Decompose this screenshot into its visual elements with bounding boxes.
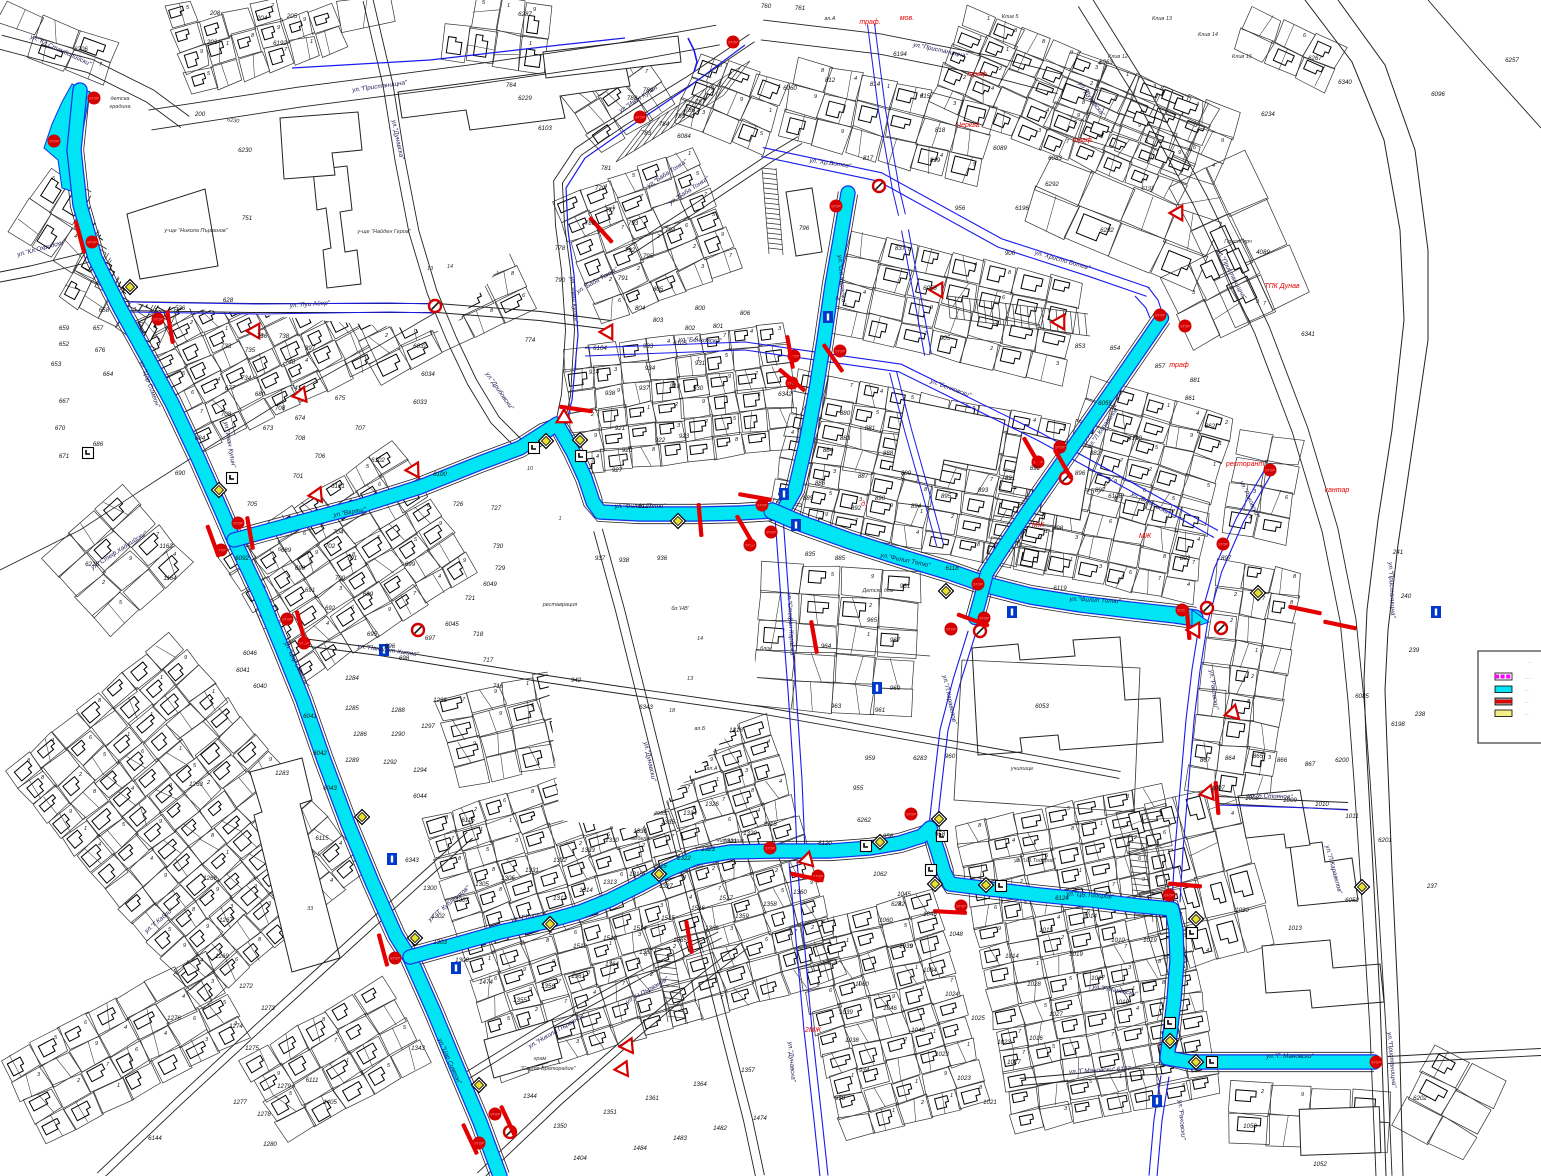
svg-text:9: 9: [95, 1041, 98, 1047]
svg-text:1: 1: [480, 827, 483, 833]
svg-text:9: 9: [463, 558, 466, 564]
svg-text:867: 867: [1305, 761, 1316, 768]
svg-text:STOP: STOP: [831, 205, 841, 209]
svg-text:1404: 1404: [573, 1155, 587, 1162]
svg-text:STOP: STOP: [973, 583, 983, 587]
svg-text:4: 4: [164, 1031, 167, 1037]
svg-text:4: 4: [326, 621, 329, 627]
svg-text:2: 2: [534, 1007, 538, 1013]
svg-text:траф.: траф.: [967, 71, 988, 78]
svg-text:1060: 1060: [855, 981, 869, 988]
svg-text:6101: 6101: [331, 483, 345, 490]
svg-text:STOP: STOP: [233, 522, 243, 526]
svg-text:892: 892: [851, 505, 862, 512]
svg-text:526: 526: [175, 305, 186, 312]
svg-text:1314: 1314: [579, 887, 593, 894]
svg-text:6059: 6059: [1098, 400, 1112, 407]
svg-text:1322: 1322: [677, 855, 691, 862]
svg-text:708: 708: [275, 405, 286, 412]
svg-text:2: 2: [998, 66, 1002, 72]
svg-text:881: 881: [865, 425, 875, 432]
svg-text:892: 892: [1030, 465, 1041, 472]
svg-text:1474: 1474: [753, 1115, 767, 1122]
svg-text:1323: 1323: [701, 846, 715, 853]
svg-text:6283: 6283: [913, 755, 927, 762]
svg-text:1326: 1326: [705, 801, 719, 808]
svg-text:9: 9: [277, 25, 280, 31]
svg-text:1305: 1305: [475, 881, 489, 888]
svg-text:4953: 4953: [654, 811, 667, 817]
svg-text:959: 959: [865, 755, 876, 762]
svg-text:964: 964: [821, 643, 832, 650]
svg-text:1: 1: [867, 632, 870, 638]
svg-text:6194: 6194: [893, 51, 907, 58]
svg-text:6262: 6262: [857, 817, 871, 824]
svg-text:4: 4: [757, 808, 760, 814]
svg-text:1279: 1279: [277, 1083, 291, 1090]
svg-text:4: 4: [51, 738, 54, 744]
svg-text:6052: 6052: [1345, 897, 1359, 904]
svg-text:9: 9: [473, 741, 476, 747]
svg-text:1359: 1359: [735, 913, 749, 920]
svg-text:1: 1: [1213, 462, 1216, 468]
svg-text:6045: 6045: [445, 621, 459, 628]
svg-text:1: 1: [226, 850, 229, 856]
svg-text:2: 2: [989, 346, 993, 352]
svg-text:1025: 1025: [971, 1015, 985, 1022]
svg-text:779: 779: [595, 185, 606, 192]
svg-text:897: 897: [1095, 487, 1106, 494]
svg-text:697: 697: [425, 635, 436, 642]
svg-text:930: 930: [693, 385, 704, 392]
svg-text:4: 4: [339, 841, 342, 847]
svg-text:6063: 6063: [1099, 59, 1113, 66]
svg-text:2: 2: [473, 807, 477, 813]
svg-text:1267: 1267: [219, 917, 233, 924]
svg-text:1327: 1327: [659, 883, 673, 890]
svg-text:937: 937: [639, 385, 650, 392]
svg-text:702: 702: [325, 543, 336, 550]
svg-text:1277: 1277: [233, 1099, 247, 1106]
svg-text:2: 2: [920, 1100, 924, 1106]
svg-text:6229: 6229: [518, 95, 532, 102]
svg-text:4: 4: [1206, 948, 1209, 954]
svg-text:1335: 1335: [661, 819, 675, 826]
svg-text:STOP: STOP: [87, 241, 97, 245]
svg-text:1: 1: [769, 108, 772, 114]
svg-text:STOP: STOP: [946, 628, 956, 632]
svg-text:2: 2: [1260, 1089, 1264, 1095]
svg-text:835: 835: [805, 551, 816, 558]
svg-text:Клив 13: Клив 13: [1152, 16, 1173, 22]
svg-text:.........: .........: [1524, 676, 1532, 680]
svg-text:1360: 1360: [793, 889, 807, 896]
svg-text:965: 965: [867, 617, 878, 624]
svg-text:812: 812: [825, 77, 836, 84]
svg-text:920: 920: [622, 447, 633, 454]
svg-text:817: 817: [863, 155, 874, 162]
svg-text:864: 864: [1225, 755, 1236, 762]
svg-text:956: 956: [883, 833, 894, 840]
svg-text:791: 791: [618, 275, 628, 282]
svg-text:1039: 1039: [839, 1009, 853, 1016]
svg-text:205: 205: [286, 13, 298, 20]
svg-text:1: 1: [1045, 529, 1048, 535]
svg-text:2: 2: [270, 3, 274, 9]
svg-text:1: 1: [179, 746, 182, 752]
svg-text:670: 670: [55, 425, 66, 432]
svg-text:690: 690: [175, 470, 186, 477]
svg-text:4: 4: [1187, 582, 1190, 588]
svg-text:888: 888: [883, 450, 894, 457]
svg-text:658: 658: [99, 307, 110, 314]
svg-text:931: 931: [695, 360, 705, 367]
svg-text:898: 898: [1053, 525, 1064, 532]
svg-text:1344: 1344: [523, 1093, 537, 1100]
svg-text:9: 9: [702, 399, 705, 405]
svg-text:1: 1: [529, 41, 532, 47]
svg-text:2: 2: [1060, 935, 1064, 941]
svg-text:4089: 4089: [1256, 249, 1270, 256]
svg-text:STOP: STOP: [1218, 543, 1228, 547]
svg-text:862: 862: [1205, 423, 1216, 430]
svg-text:6343: 6343: [639, 704, 653, 711]
svg-text:4: 4: [1136, 1006, 1139, 1012]
svg-text:10: 10: [527, 466, 534, 472]
svg-text:6040: 6040: [253, 683, 267, 690]
svg-text:1278: 1278: [257, 1111, 271, 1118]
svg-text:1361: 1361: [645, 1095, 659, 1102]
svg-text:4: 4: [182, 994, 185, 1000]
svg-text:9: 9: [814, 94, 817, 100]
svg-text:2: 2: [76, 1078, 80, 1084]
svg-text:1019: 1019: [1069, 951, 1083, 958]
svg-text:885: 885: [803, 495, 814, 502]
svg-text:1024: 1024: [945, 991, 959, 998]
svg-text:786: 786: [685, 107, 696, 114]
svg-text:792: 792: [625, 247, 636, 254]
svg-text:895: 895: [941, 493, 952, 500]
svg-text:707: 707: [355, 425, 366, 432]
svg-text:9: 9: [825, 512, 828, 518]
svg-text:6117: 6117: [638, 503, 652, 510]
svg-text:1: 1: [488, 956, 491, 962]
svg-text:673: 673: [263, 425, 274, 432]
svg-text:1273: 1273: [261, 1005, 275, 1012]
svg-text:9: 9: [184, 655, 187, 661]
svg-text:699: 699: [363, 591, 374, 598]
svg-text:1048: 1048: [911, 1027, 925, 1034]
svg-text:1007: 1007: [1211, 785, 1225, 792]
svg-text:6034: 6034: [421, 371, 435, 378]
svg-text:691: 691: [305, 587, 315, 594]
svg-text:STOP: STOP: [474, 1142, 484, 1146]
svg-text:1302: 1302: [431, 913, 445, 920]
svg-text:6032: 6032: [413, 343, 427, 350]
svg-text:793: 793: [628, 220, 639, 227]
svg-text:738: 738: [279, 333, 290, 340]
svg-text:727: 727: [491, 505, 502, 512]
svg-text:237: 237: [1426, 883, 1438, 890]
svg-text:726: 726: [453, 501, 464, 508]
svg-text:1514: 1514: [633, 925, 647, 932]
svg-text:818: 818: [935, 127, 946, 134]
svg-text:2: 2: [950, 514, 954, 520]
svg-text:674: 674: [295, 415, 306, 422]
svg-text:4: 4: [305, 358, 308, 364]
svg-text:9: 9: [206, 924, 209, 930]
svg-text:659: 659: [59, 325, 70, 332]
svg-text:761: 761: [795, 5, 805, 12]
svg-text:1512: 1512: [573, 943, 587, 950]
svg-text:6342: 6342: [778, 391, 792, 398]
svg-text:6041: 6041: [303, 713, 317, 720]
svg-text:704: 704: [333, 529, 344, 536]
svg-text:траф.: траф.: [859, 19, 880, 26]
svg-text:вл.А: вл.А: [825, 16, 836, 22]
svg-text:6033: 6033: [413, 399, 427, 406]
svg-text:657: 657: [93, 325, 104, 332]
svg-text:788: 788: [627, 95, 638, 102]
svg-text:795: 795: [643, 253, 654, 260]
svg-text:2: 2: [903, 1037, 907, 1043]
svg-text:6108: 6108: [1108, 493, 1122, 500]
svg-text:4: 4: [1140, 1027, 1143, 1033]
svg-text:4: 4: [217, 377, 220, 383]
svg-text:9: 9: [617, 388, 620, 394]
svg-text:1474: 1474: [479, 979, 493, 986]
svg-text:9: 9: [594, 433, 597, 439]
svg-text:1357: 1357: [741, 1067, 755, 1074]
svg-text:6103: 6103: [538, 125, 552, 132]
svg-text:1286: 1286: [353, 731, 367, 738]
svg-text:траф.: траф.: [1072, 137, 1093, 144]
svg-text:6206: 6206: [74, 46, 88, 53]
svg-text:4: 4: [854, 76, 857, 82]
svg-text:2: 2: [810, 925, 814, 931]
svg-text:1: 1: [846, 938, 849, 944]
svg-text:1: 1: [950, 1093, 953, 1099]
svg-text:1: 1: [212, 689, 215, 695]
svg-text:690: 690: [295, 565, 306, 572]
svg-text:9: 9: [890, 503, 893, 509]
svg-text:1276: 1276: [167, 1015, 181, 1022]
svg-text:1023: 1023: [997, 1039, 1011, 1046]
svg-text:ТПК Дунав: ТПК Дунав: [1264, 283, 1300, 290]
svg-text:1045: 1045: [897, 891, 911, 898]
svg-text:Клив 12: Клив 12: [1108, 54, 1128, 60]
svg-text:2: 2: [1250, 674, 1254, 680]
svg-text:STOP: STOP: [1180, 325, 1190, 329]
svg-text:6144: 6144: [148, 1135, 162, 1142]
svg-text:1312: 1312: [553, 895, 567, 902]
svg-text:815: 815: [920, 93, 931, 100]
svg-text:730: 730: [493, 543, 504, 550]
svg-text:960: 960: [945, 753, 956, 760]
svg-text:961: 961: [875, 707, 885, 714]
svg-text:880: 880: [840, 410, 851, 417]
svg-text:9: 9: [810, 880, 813, 886]
svg-text:9: 9: [1190, 433, 1193, 439]
svg-text:1: 1: [1036, 961, 1039, 967]
svg-text:6053: 6053: [1035, 703, 1049, 710]
svg-text:1: 1: [1167, 403, 1170, 409]
svg-text:4: 4: [1197, 537, 1200, 543]
svg-text:1517: 1517: [719, 895, 733, 902]
svg-text:1318: 1318: [763, 821, 777, 828]
svg-text:397: 397: [305, 345, 316, 352]
svg-text:6343: 6343: [405, 857, 419, 864]
svg-text:1: 1: [310, 39, 313, 45]
svg-text:Черква: Черква: [956, 122, 979, 129]
svg-text:956: 956: [955, 205, 966, 212]
svg-text:718: 718: [473, 631, 484, 638]
svg-text:734: 734: [241, 375, 252, 382]
svg-text:1016: 1016: [1029, 1035, 1043, 1042]
svg-text:4: 4: [791, 430, 794, 436]
svg-text:1306: 1306: [501, 875, 515, 882]
svg-text:1023: 1023: [957, 1075, 971, 1082]
svg-text:1020: 1020: [1235, 907, 1249, 914]
svg-text:МЖ: МЖ: [1139, 533, 1152, 540]
svg-text:1046: 1046: [923, 911, 937, 918]
svg-text:891: 891: [1005, 475, 1015, 482]
svg-text:2: 2: [774, 868, 778, 874]
svg-text:Прист.прч: Прист.прч: [1224, 239, 1252, 245]
svg-text:6202: 6202: [1413, 1095, 1427, 1102]
svg-text:1313: 1313: [603, 879, 617, 886]
svg-text:699: 699: [405, 561, 416, 568]
svg-text:721: 721: [465, 595, 475, 602]
svg-text:4: 4: [667, 339, 670, 345]
svg-text:778: 778: [555, 245, 566, 252]
svg-text:9: 9: [216, 887, 219, 893]
svg-text:9: 9: [529, 987, 532, 993]
svg-text:1318: 1318: [729, 727, 743, 734]
svg-text:886: 886: [815, 480, 826, 487]
svg-text:Детски дом: Детски дом: [861, 588, 893, 594]
svg-text:детска: детска: [111, 96, 130, 102]
svg-text:1325: 1325: [653, 863, 667, 870]
svg-text:4: 4: [1196, 411, 1199, 417]
svg-text:6115: 6115: [315, 835, 329, 842]
svg-text:STOP: STOP: [1371, 1061, 1381, 1065]
svg-text:2: 2: [1229, 618, 1233, 624]
svg-text:854: 854: [1110, 345, 1121, 352]
svg-text:училище: училище: [1010, 766, 1034, 772]
svg-text:1357: 1357: [639, 949, 653, 956]
svg-text:STOP: STOP: [490, 1113, 500, 1117]
svg-text:4: 4: [1212, 163, 1215, 169]
svg-text:STOP: STOP: [1155, 314, 1165, 318]
svg-text:9: 9: [169, 783, 172, 789]
svg-text:1060: 1060: [879, 917, 893, 924]
svg-text:882: 882: [1090, 450, 1101, 457]
svg-text:1023: 1023: [935, 1051, 949, 1058]
svg-text:6201: 6201: [1378, 837, 1392, 844]
svg-text:200: 200: [194, 111, 206, 118]
svg-text:885: 885: [835, 555, 846, 562]
svg-text:950: 950: [835, 1095, 846, 1102]
svg-text:1: 1: [915, 1079, 918, 1085]
svg-text:1019: 1019: [1115, 999, 1129, 1006]
svg-text:774: 774: [525, 337, 536, 344]
svg-text:9: 9: [159, 819, 162, 825]
svg-text:1: 1: [967, 1042, 970, 1048]
svg-text:760: 760: [761, 3, 772, 10]
svg-text:1292: 1292: [383, 759, 397, 766]
svg-text:1288: 1288: [391, 707, 405, 714]
svg-text:936: 936: [657, 555, 668, 562]
svg-text:ресторант: ресторант: [1225, 461, 1264, 468]
svg-text:906: 906: [1005, 250, 1016, 257]
svg-text:13: 13: [687, 676, 694, 682]
svg-text:921: 921: [615, 425, 625, 432]
svg-text:857: 857: [1155, 363, 1166, 370]
svg-text:бл.'НВ': бл.'НВ': [671, 606, 689, 612]
svg-text:1515: 1515: [661, 915, 675, 922]
svg-text:777: 777: [605, 207, 616, 214]
svg-text:мебели: мебели: [631, 836, 650, 842]
svg-text:4: 4: [1033, 418, 1036, 424]
svg-text:6084: 6084: [677, 133, 691, 140]
svg-text:4: 4: [1196, 102, 1199, 108]
svg-text:1164: 1164: [163, 575, 177, 582]
svg-text:676: 676: [95, 347, 106, 354]
svg-text:1303: 1303: [433, 939, 447, 946]
svg-text:......: ......: [1524, 700, 1529, 704]
svg-text:4: 4: [200, 958, 203, 964]
svg-text:914: 914: [589, 369, 600, 376]
svg-text:837: 837: [895, 245, 906, 252]
svg-text:4: 4: [683, 875, 686, 881]
svg-text:967: 967: [890, 637, 901, 644]
svg-text:1014: 1014: [1005, 953, 1019, 960]
svg-text:6043: 6043: [323, 785, 337, 792]
svg-text:9: 9: [69, 809, 72, 815]
svg-text:1: 1: [558, 516, 561, 522]
svg-text:4: 4: [991, 86, 994, 92]
svg-text:1: 1: [1219, 441, 1222, 447]
svg-text:"Свето Браторадие": "Свето Браторадие": [520, 1066, 576, 1072]
svg-text:9: 9: [1178, 150, 1181, 156]
svg-text:6124: 6124: [1055, 895, 1069, 902]
svg-text:706: 706: [315, 453, 326, 460]
svg-text:652: 652: [59, 341, 70, 348]
svg-text:961: 961: [900, 583, 910, 590]
svg-text:238: 238: [1414, 711, 1426, 718]
svg-text:1266: 1266: [203, 875, 217, 882]
svg-text:1: 1: [647, 405, 650, 411]
svg-text:1405: 1405: [323, 1099, 337, 1106]
svg-text:STOP: STOP: [635, 116, 645, 120]
svg-text:у-ще "Найден Геров": у-ще "Найден Геров": [356, 228, 411, 235]
svg-text:6118: 6118: [945, 565, 959, 572]
svg-text:208: 208: [209, 10, 221, 17]
svg-text:1333: 1333: [581, 847, 595, 854]
svg-text:894: 894: [911, 503, 922, 510]
svg-text:6096: 6096: [1431, 91, 1445, 98]
svg-text:4: 4: [596, 454, 599, 460]
svg-text:МЖ: МЖ: [1032, 522, 1045, 529]
svg-text:905: 905: [940, 335, 951, 342]
svg-text:1334: 1334: [683, 810, 697, 817]
svg-text:1307: 1307: [455, 897, 469, 904]
svg-text:4: 4: [98, 842, 101, 848]
svg-text:1010: 1010: [1111, 937, 1125, 944]
svg-text:241: 241: [1392, 549, 1403, 556]
svg-text:2: 2: [868, 603, 872, 609]
